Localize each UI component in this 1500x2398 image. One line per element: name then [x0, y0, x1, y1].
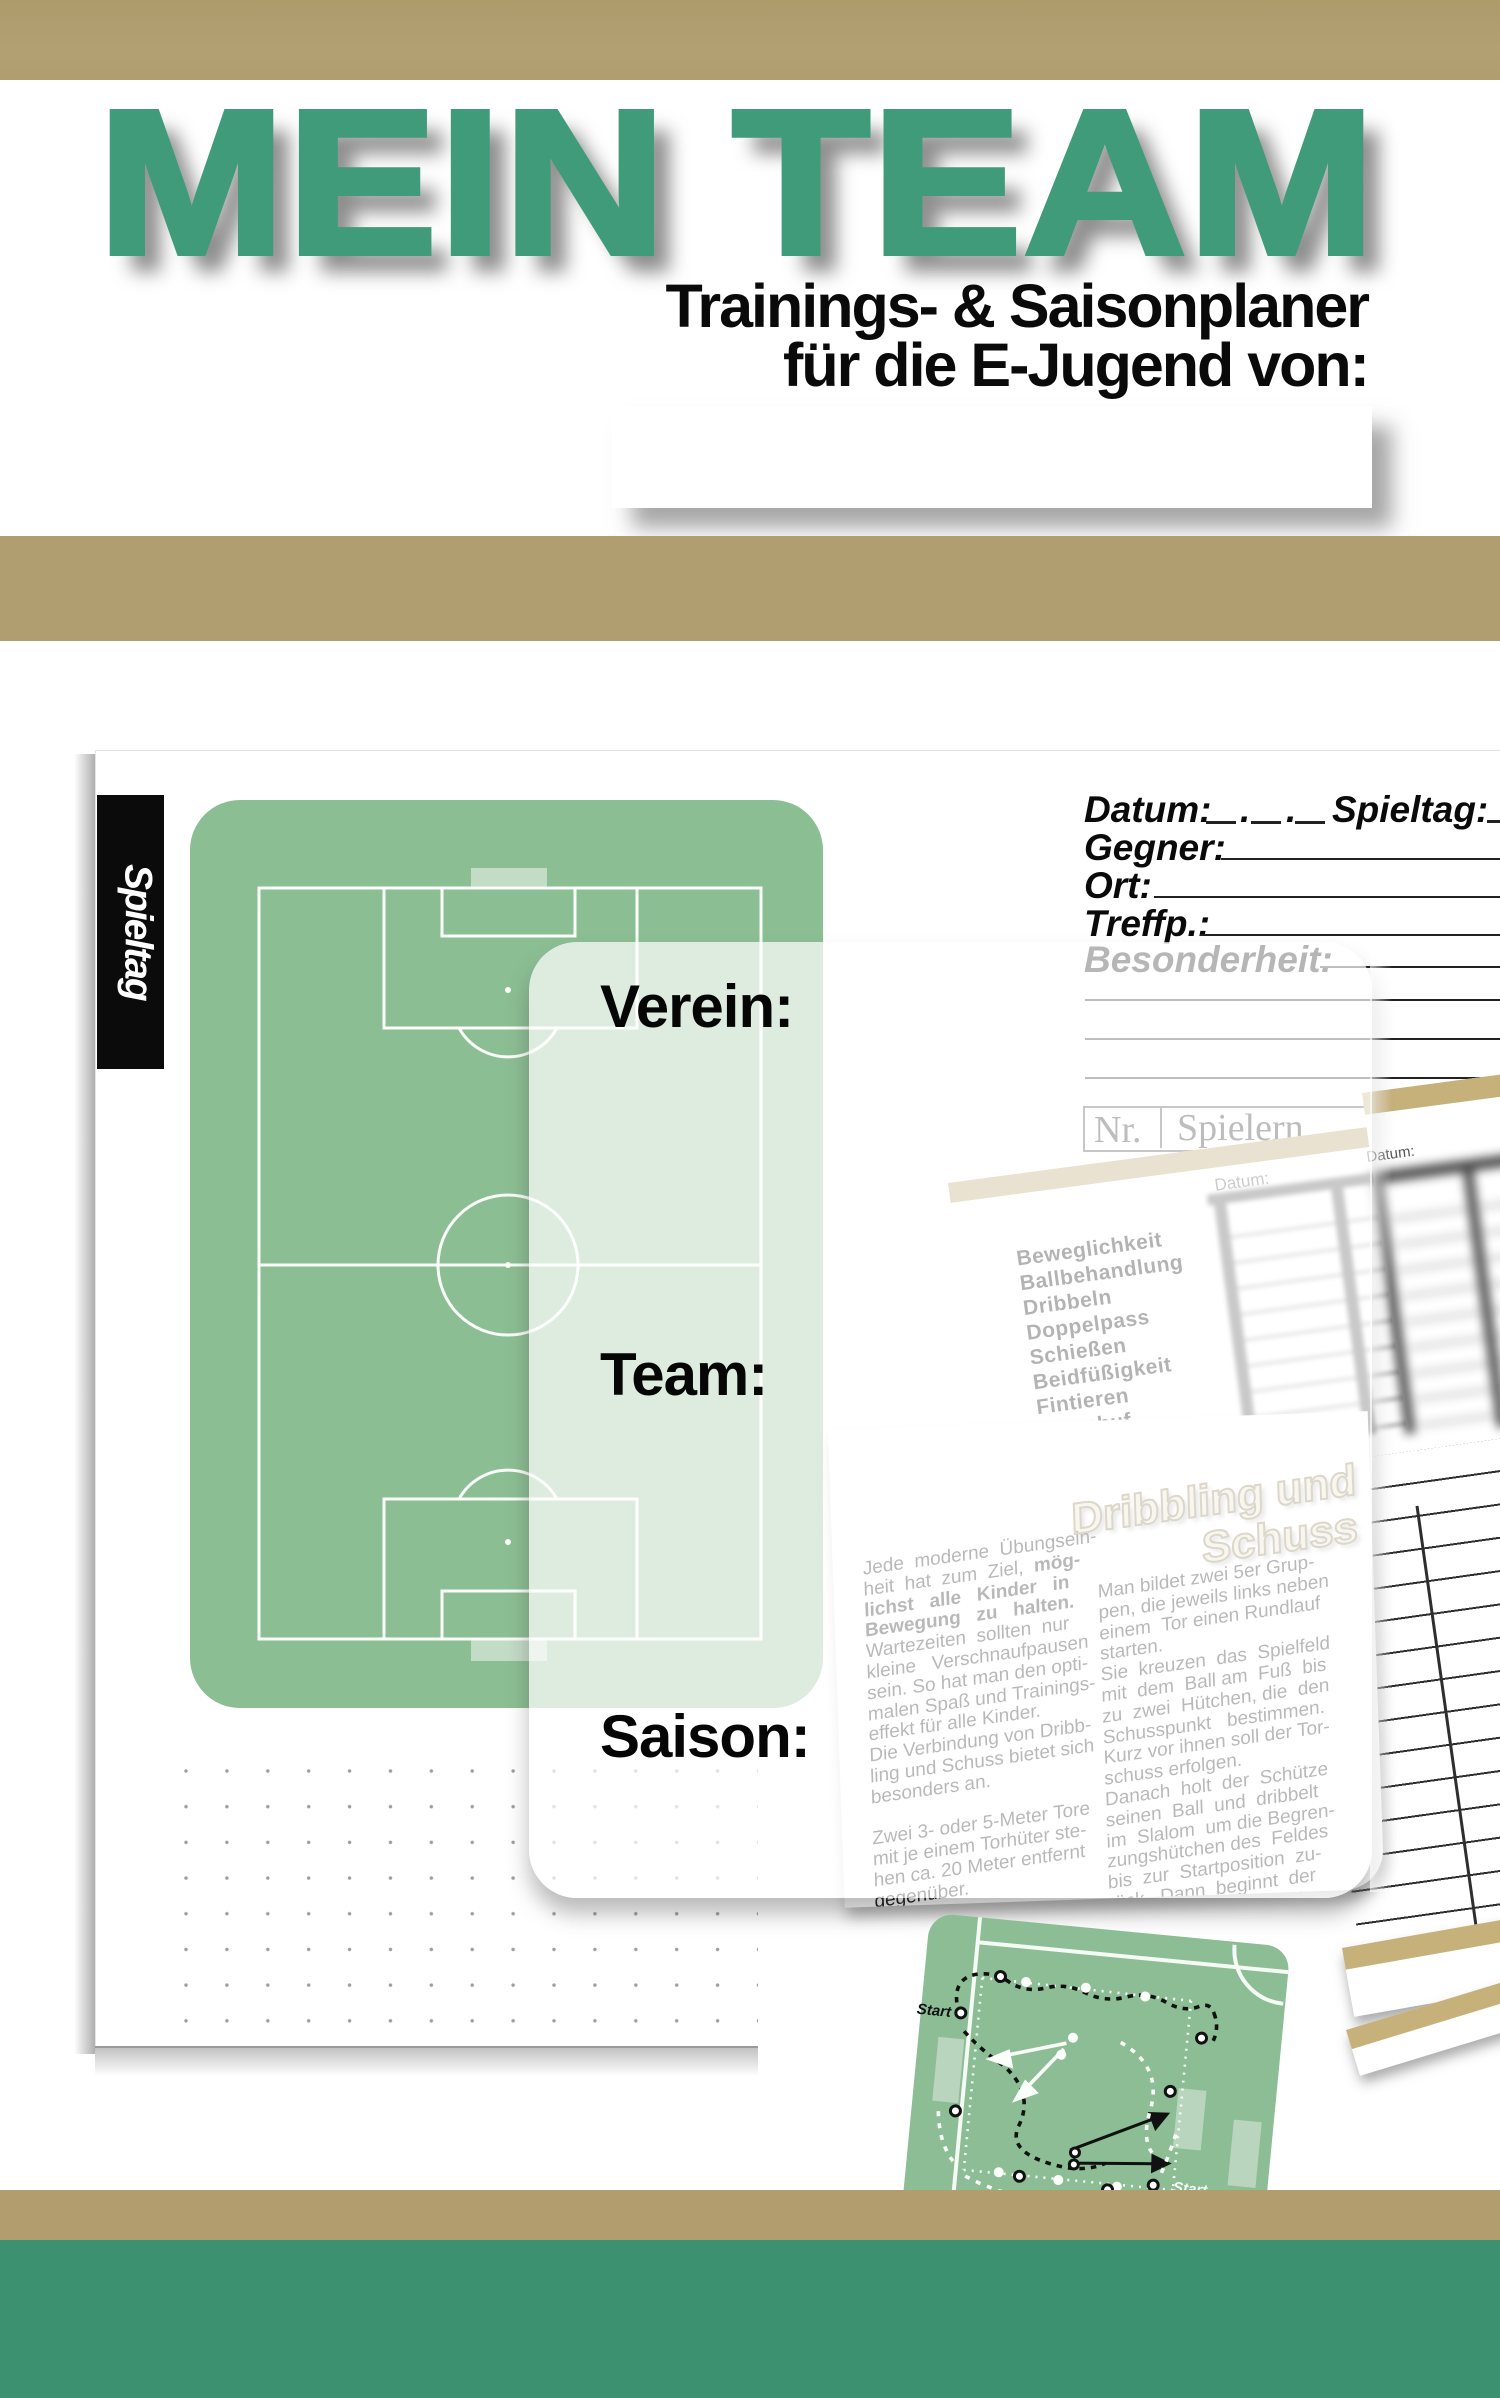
- svg-text:Start: Start: [916, 2001, 953, 2021]
